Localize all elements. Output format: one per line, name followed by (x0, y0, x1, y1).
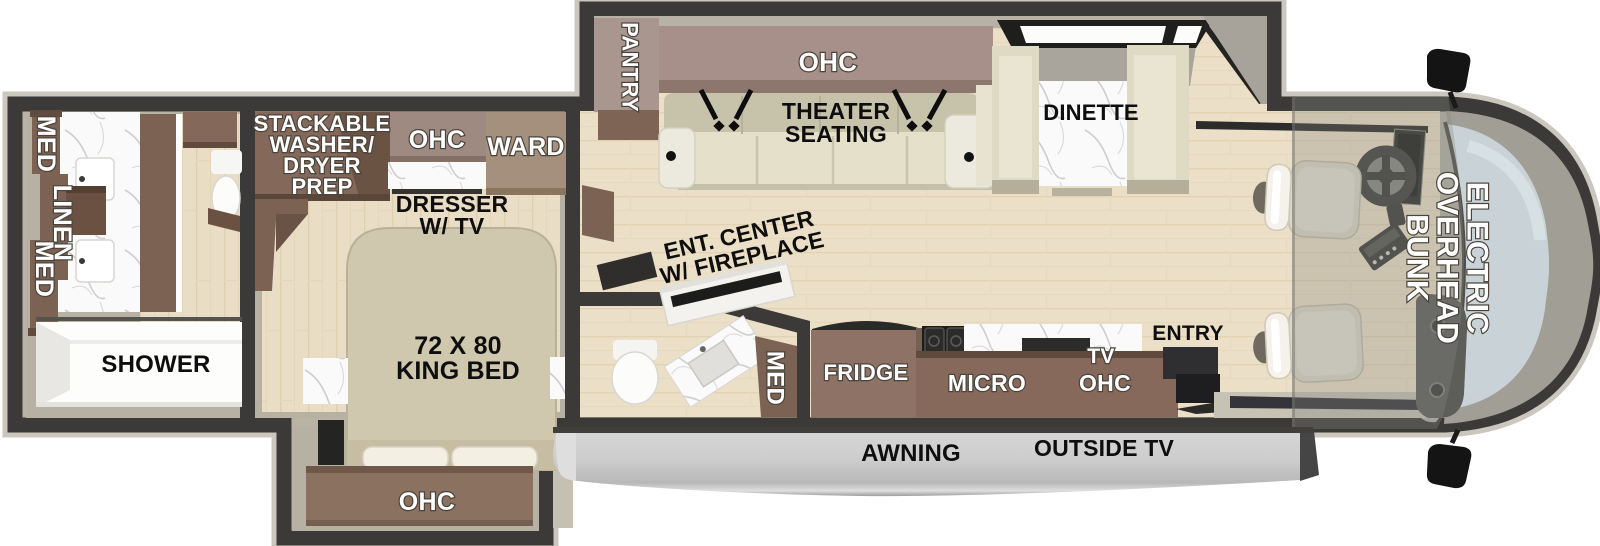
svg-text:PREP: PREP (291, 174, 352, 199)
svg-text:72 X 80: 72 X 80 (414, 332, 502, 360)
svg-text:MICRO: MICRO (948, 370, 1026, 396)
svg-text:OHC: OHC (409, 126, 465, 154)
svg-text:BUNK: BUNK (1401, 214, 1434, 302)
svg-text:TV: TV (1087, 345, 1114, 368)
svg-text:ENTRY: ENTRY (1152, 322, 1223, 345)
svg-text:MED: MED (762, 351, 789, 405)
svg-text:OHC: OHC (399, 488, 455, 516)
svg-text:OVERHEAD: OVERHEAD (1431, 172, 1464, 344)
svg-text:OUTSIDE TV: OUTSIDE TV (1034, 435, 1174, 461)
svg-text:AWNING: AWNING (861, 440, 961, 467)
svg-text:PANTRY: PANTRY (618, 22, 643, 112)
svg-text:ELECTRIC: ELECTRIC (1461, 182, 1494, 334)
svg-text:SEATING: SEATING (785, 121, 887, 147)
svg-text:W/ TV: W/ TV (420, 213, 485, 239)
svg-text:FRIDGE: FRIDGE (824, 360, 909, 385)
svg-text:MED: MED (32, 116, 60, 172)
svg-text:MED: MED (30, 241, 58, 297)
svg-text:SHOWER: SHOWER (101, 351, 210, 378)
svg-text:KING BED: KING BED (396, 357, 520, 385)
svg-text:OHC: OHC (1079, 370, 1131, 396)
svg-text:DINETTE: DINETTE (1043, 100, 1139, 125)
svg-text:WARD: WARD (487, 133, 565, 161)
svg-text:OHC: OHC (799, 47, 858, 77)
